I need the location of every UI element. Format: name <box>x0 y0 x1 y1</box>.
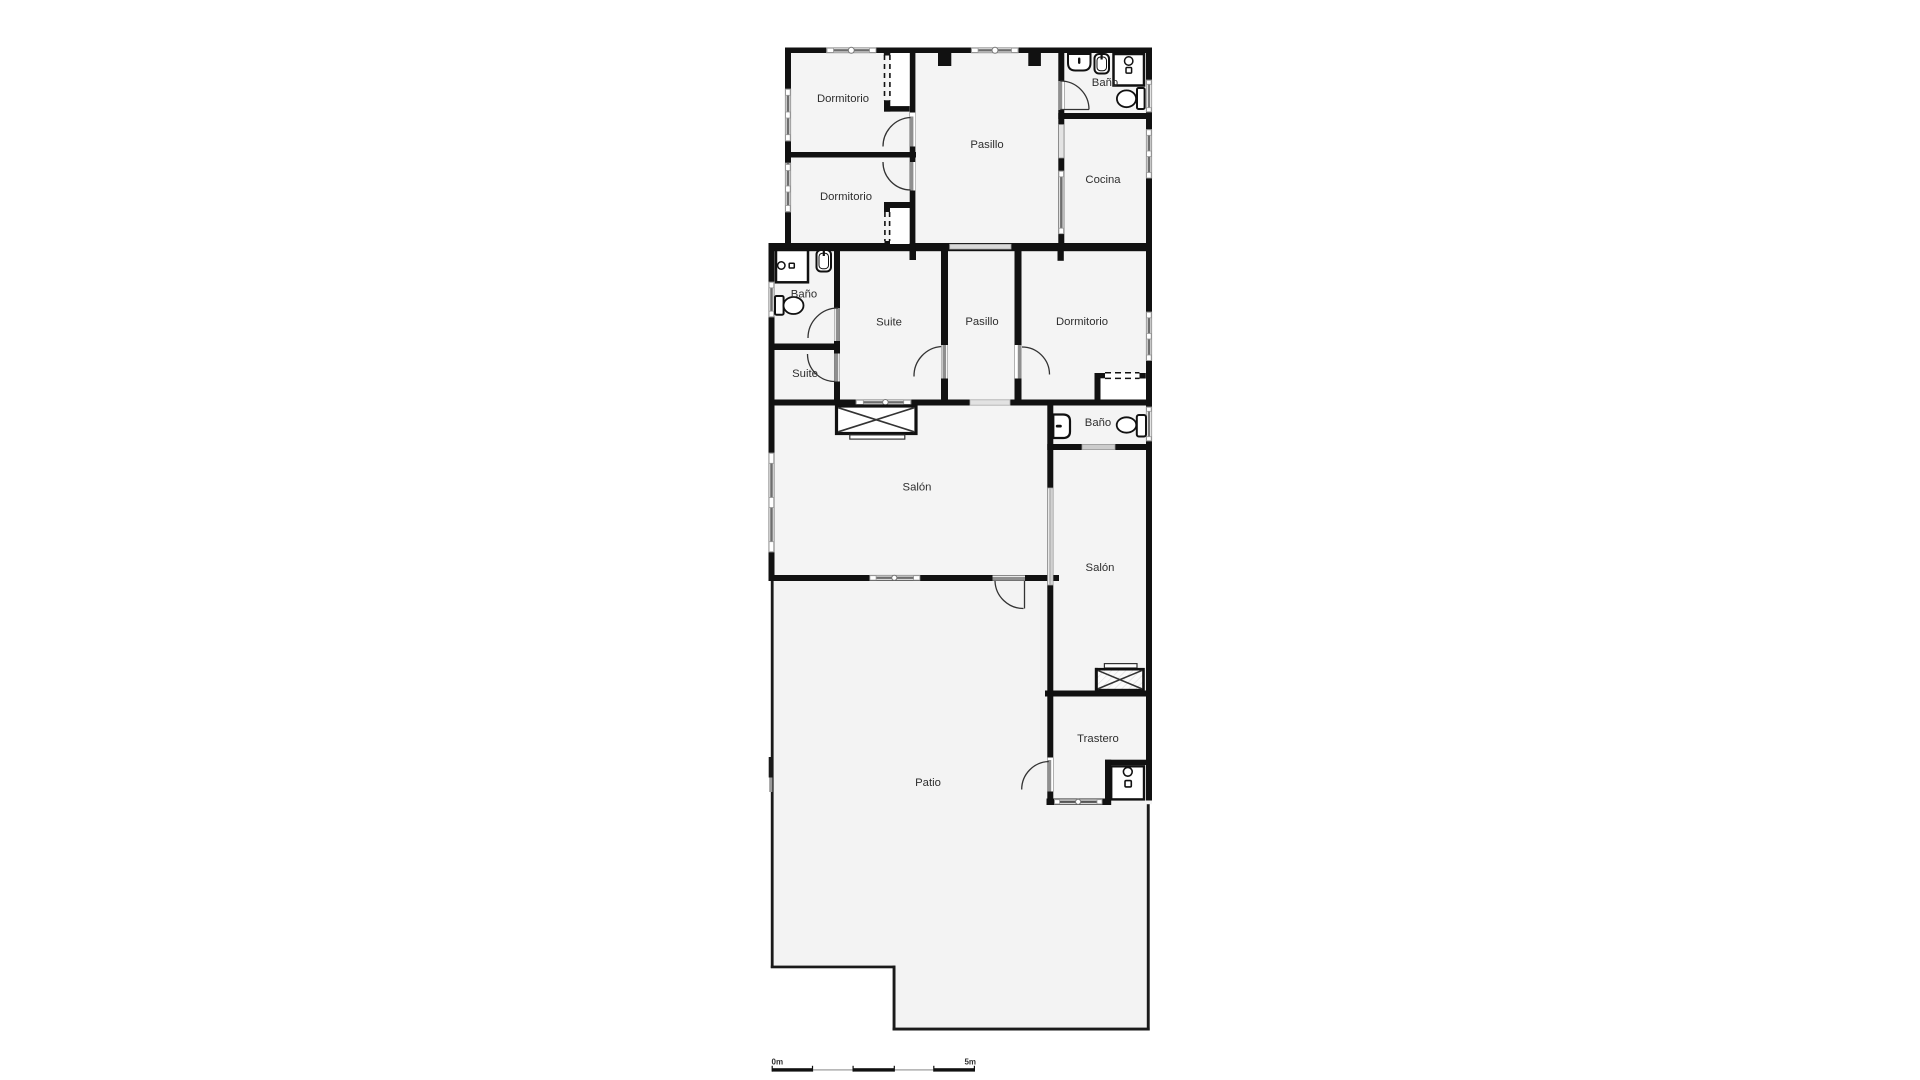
svg-text:0m: 0m <box>772 1058 784 1067</box>
svg-text:Suite: Suite <box>792 368 818 380</box>
svg-text:Dormitorio: Dormitorio <box>817 93 869 105</box>
svg-text:Baño: Baño <box>1092 77 1118 89</box>
svg-text:Trastero: Trastero <box>1077 733 1119 745</box>
svg-text:Dormitorio: Dormitorio <box>820 191 872 203</box>
svg-text:Baño: Baño <box>1085 417 1111 429</box>
svg-text:Suite: Suite <box>876 317 902 329</box>
svg-text:5m: 5m <box>964 1058 976 1067</box>
svg-text:Baño: Baño <box>791 289 817 301</box>
svg-text:Dormitorio: Dormitorio <box>1056 316 1108 328</box>
svg-text:Cocina: Cocina <box>1085 174 1121 186</box>
svg-text:Salón: Salón <box>1086 562 1115 574</box>
svg-text:Pasillo: Pasillo <box>970 139 1003 151</box>
svg-text:Patio: Patio <box>915 777 941 789</box>
svg-text:Pasillo: Pasillo <box>965 316 998 328</box>
svg-text:Salón: Salón <box>903 482 932 494</box>
